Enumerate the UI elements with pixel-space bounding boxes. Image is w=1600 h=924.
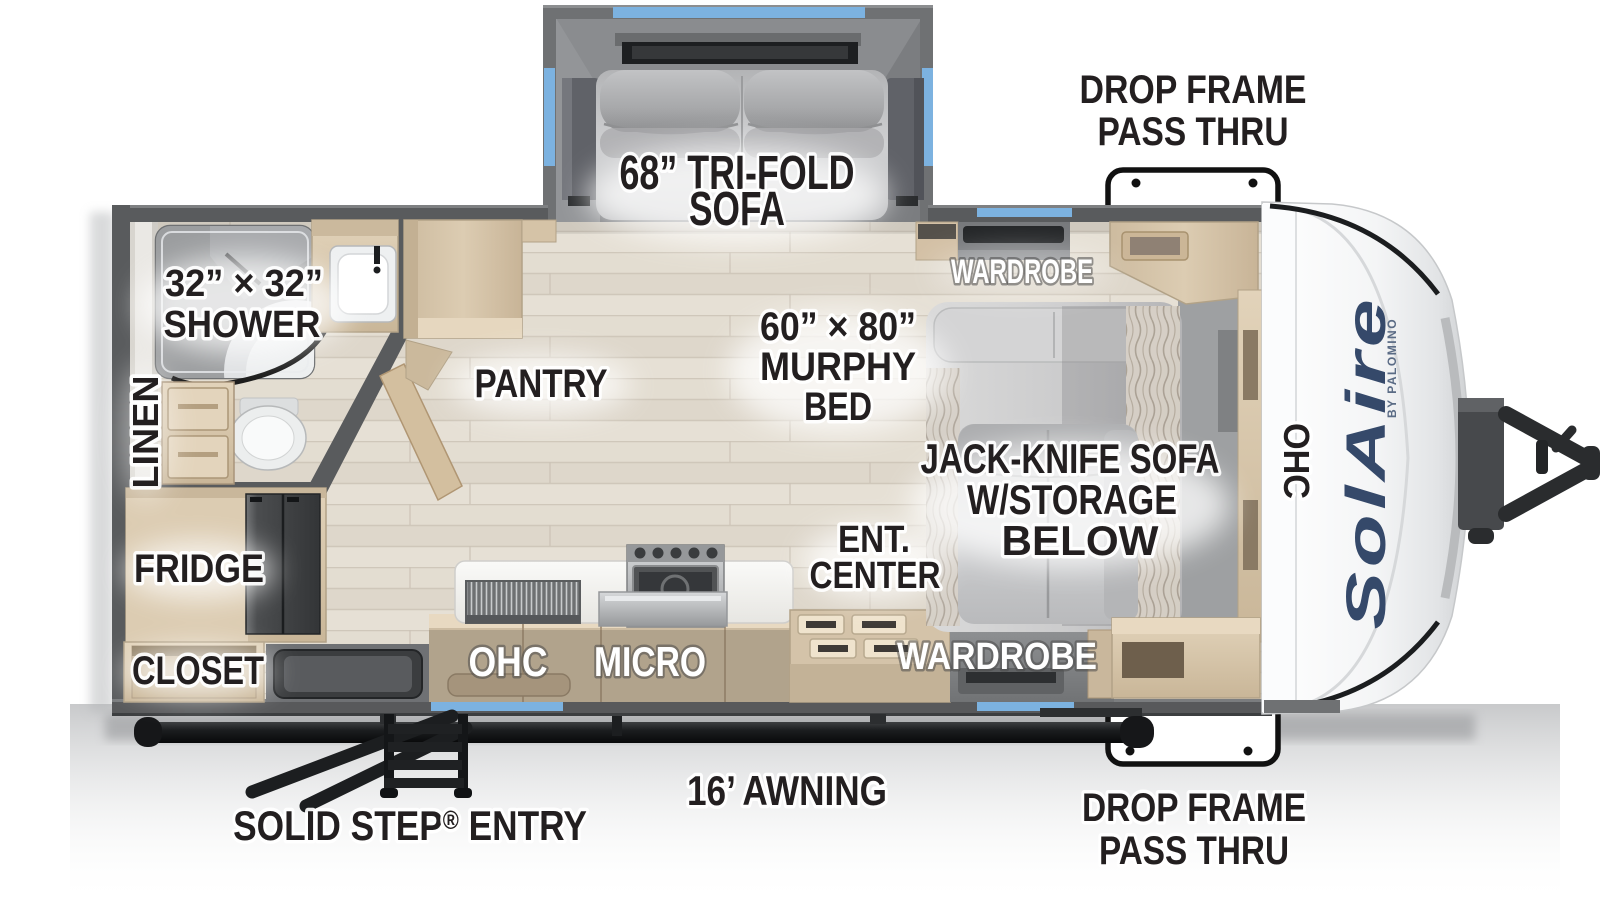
svg-text:MICRO: MICRO [594,638,706,685]
svg-text:LINEN: LINEN [125,376,166,489]
svg-text:FRIDGE: FRIDGE [134,547,264,591]
svg-text:PASS THRU: PASS THRU [1099,829,1289,873]
svg-text:OHC: OHC [1276,423,1317,499]
svg-text:BED: BED [804,385,872,429]
svg-text:BY PALOMINO: BY PALOMINO [1385,318,1399,418]
svg-text:SHOWER: SHOWER [164,304,321,346]
svg-text:60” × 80”: 60” × 80” [760,305,916,349]
svg-text:DROP FRAME: DROP FRAME [1080,68,1307,112]
svg-text:BELOW: BELOW [1002,517,1159,564]
svg-text:PANTRY: PANTRY [475,362,608,406]
svg-text:W/STORAGE: W/STORAGE [967,476,1177,523]
svg-text:DROP FRAME: DROP FRAME [1082,786,1306,830]
svg-text:JACK-KNIFE SOFA: JACK-KNIFE SOFA [921,435,1220,482]
svg-text:WARDROBE: WARDROBE [897,636,1097,678]
svg-text:CLOSET: CLOSET [132,649,264,693]
svg-text:MURPHY: MURPHY [760,345,916,389]
svg-text:SOLID STEP® ENTRY: SOLID STEP® ENTRY [233,803,587,850]
svg-text:OHC: OHC [469,638,548,685]
svg-text:32” × 32”: 32” × 32” [165,263,323,305]
svg-text:WARDROBE: WARDROBE [951,253,1093,291]
svg-text:16’ AWNING: 16’ AWNING [687,767,887,814]
svg-text:CENTER: CENTER [810,555,941,597]
svg-text:SOFA: SOFA [689,183,785,236]
svg-text:PASS THRU: PASS THRU [1098,110,1289,154]
